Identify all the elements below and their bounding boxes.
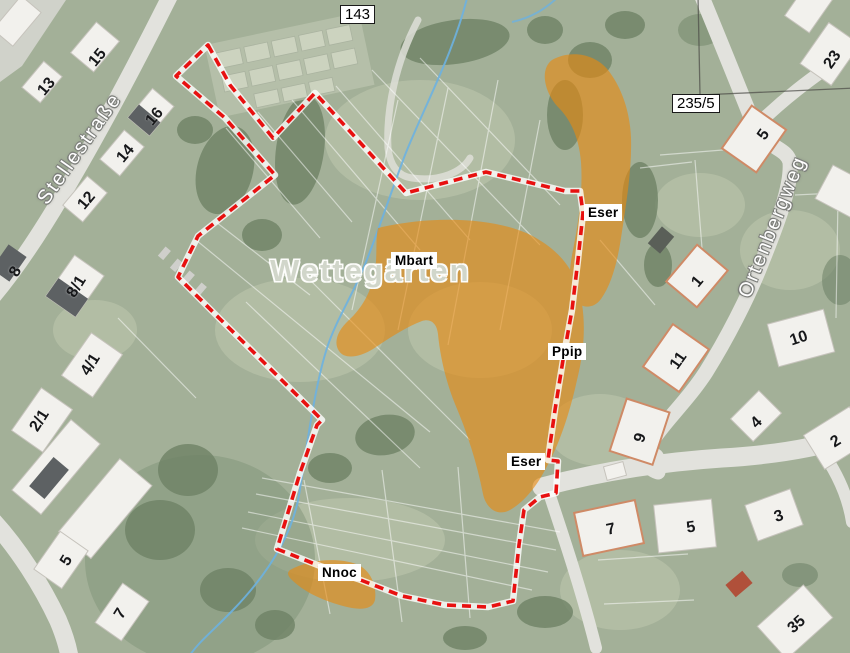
area-label-ppip: Ppip <box>548 343 586 360</box>
area-label-mbart: Mbart <box>391 252 437 269</box>
aerial-basemap <box>0 0 850 653</box>
map-canvas[interactable]: Wettegärten Stellestraße Ortenbergweg 14… <box>0 0 850 653</box>
place-label-wettegaerten: Wettegärten <box>270 253 471 289</box>
area-label-eser-south: Eser <box>507 453 545 470</box>
parcel-label-235-5: 235/5 <box>672 94 720 113</box>
aerial-map-svg <box>0 0 850 653</box>
area-label-nnoc: Nnoc <box>318 564 361 581</box>
parcel-label-143: 143 <box>340 5 375 24</box>
area-label-eser-north: Eser <box>584 204 622 221</box>
